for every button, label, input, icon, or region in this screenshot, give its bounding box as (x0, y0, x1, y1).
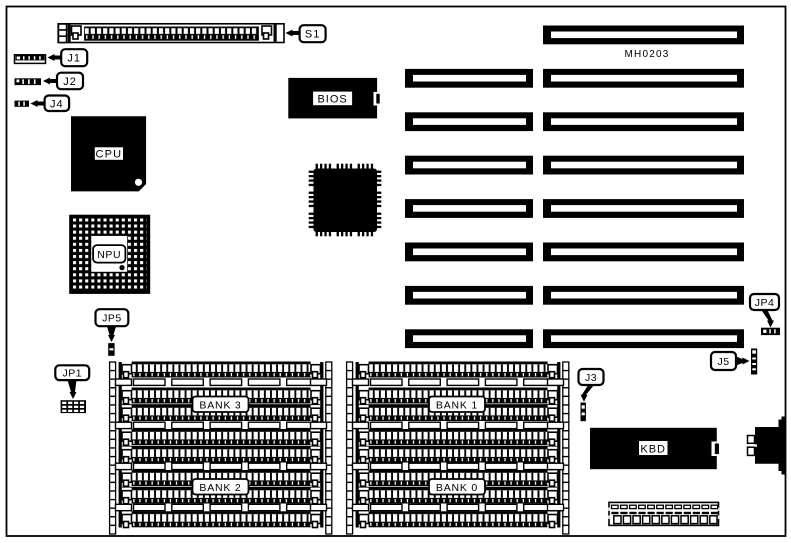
svg-text:S1: S1 (305, 29, 320, 41)
svg-text:BANK 2: BANK 2 (199, 482, 241, 494)
svg-text:BIOS: BIOS (317, 94, 347, 106)
svg-text:J4: J4 (50, 98, 64, 110)
svg-text:J1: J1 (67, 53, 81, 65)
svg-text:BANK 3: BANK 3 (199, 400, 241, 412)
svg-text:BANK 1: BANK 1 (436, 400, 478, 412)
svg-text:J5: J5 (717, 356, 729, 368)
svg-text:JP5: JP5 (102, 313, 122, 325)
svg-text:JP4: JP4 (755, 297, 775, 309)
svg-text:BANK 0: BANK 0 (436, 482, 478, 494)
svg-text:KBD: KBD (640, 443, 666, 455)
svg-text:J2: J2 (63, 76, 77, 88)
svg-text:J3: J3 (585, 372, 597, 384)
svg-text:CPU: CPU (95, 148, 122, 160)
svg-text:NPU: NPU (97, 249, 121, 261)
svg-text:JP1: JP1 (62, 368, 82, 380)
svg-text:MH0203: MH0203 (625, 49, 670, 60)
